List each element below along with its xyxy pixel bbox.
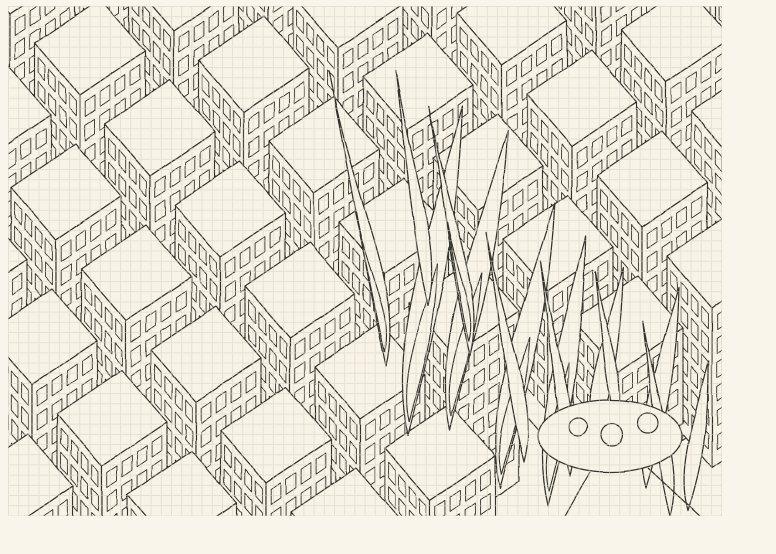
ink-layer: [8, 6, 722, 516]
graph-paper-canvas: [8, 6, 722, 516]
ufo-porthole: [638, 413, 658, 433]
page: [0, 0, 776, 554]
ufo-porthole: [569, 418, 587, 436]
ufo-porthole: [601, 424, 623, 446]
city-illustration-svg: [8, 6, 722, 516]
ufo-beam-line: [564, 472, 590, 516]
